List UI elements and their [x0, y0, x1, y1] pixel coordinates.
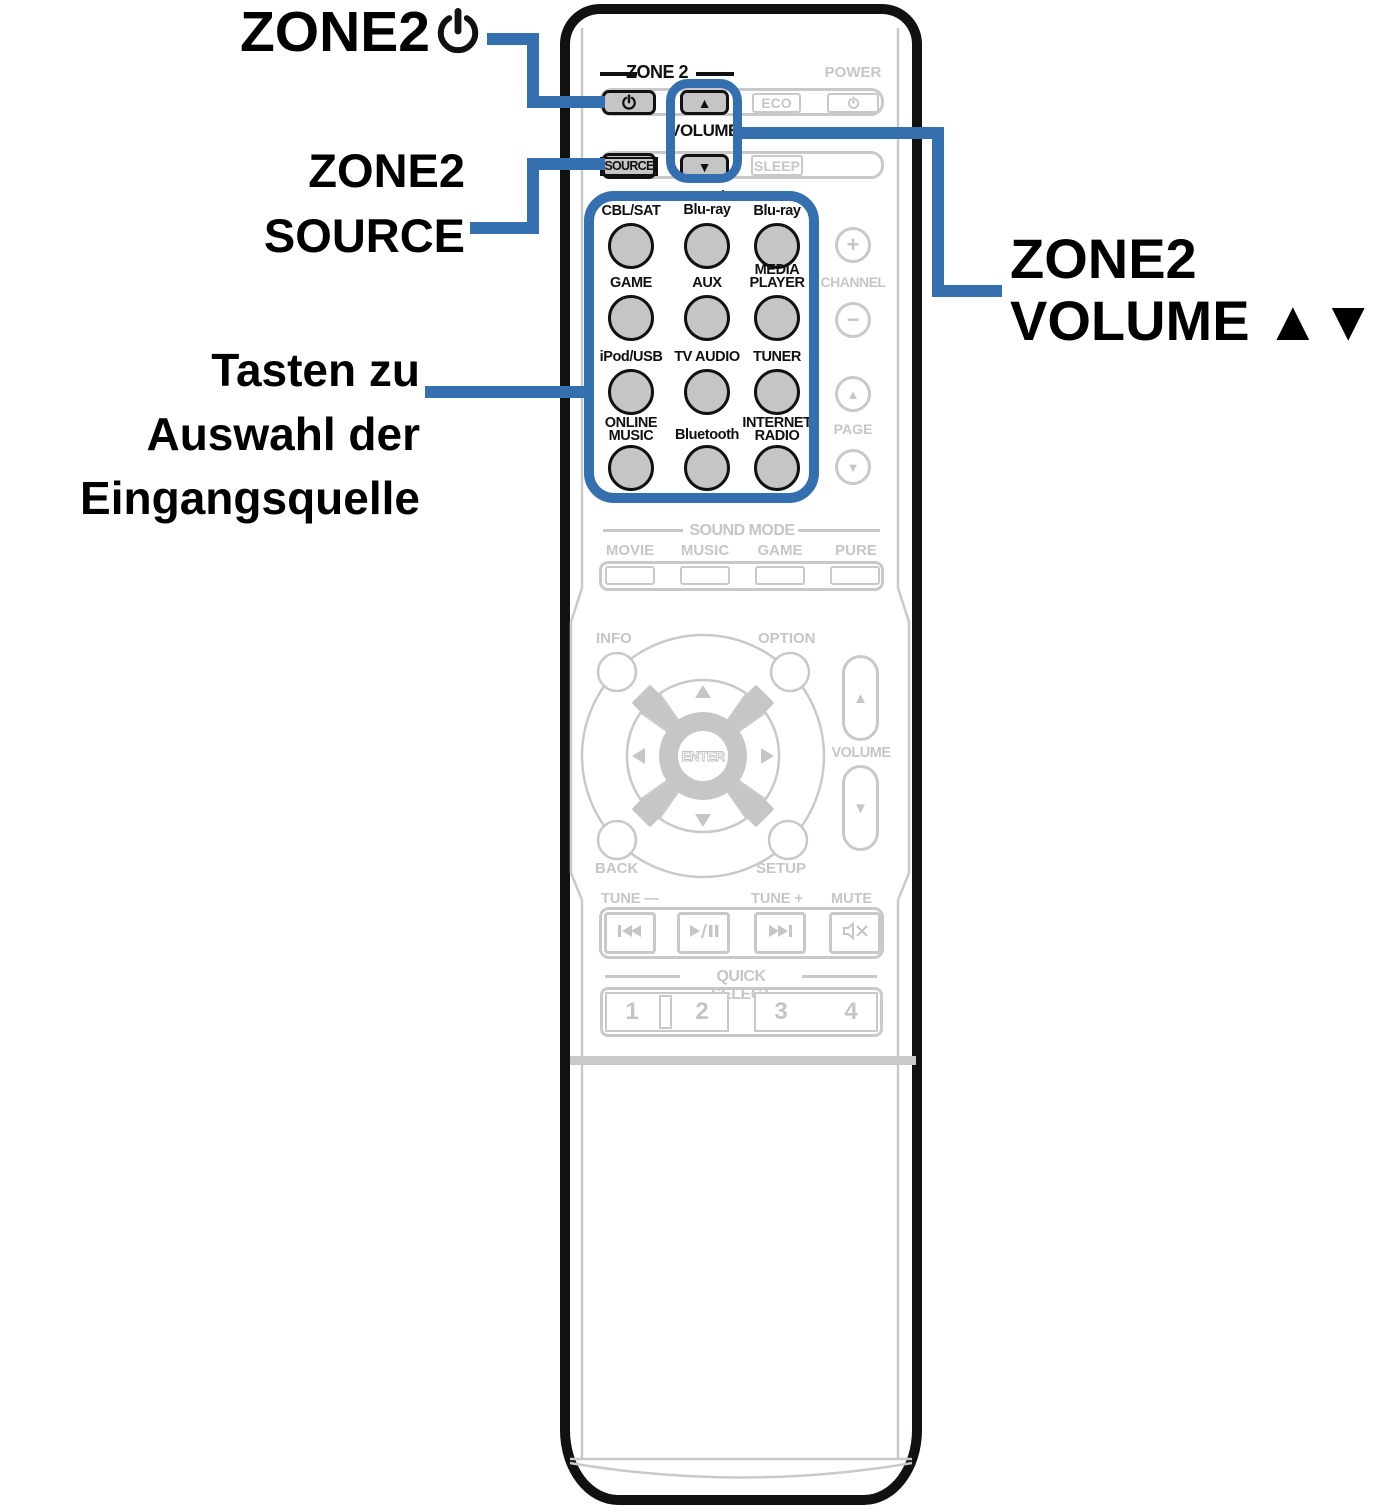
diagram-canvas: ZONE2 ZONE2 SOURCE Tasten zu Auswahl der…: [0, 0, 1386, 1510]
power-icon: [621, 94, 637, 111]
plus-icon: +: [847, 232, 860, 258]
input-select-highlight-box: [584, 191, 819, 503]
play-pause-icon: [687, 922, 721, 945]
callout-input-select-line2: Auswahl der: [40, 402, 420, 466]
eco-button[interactable]: ECO: [752, 93, 801, 113]
connector-zone2-volume: [932, 127, 944, 297]
skip-forward-icon: [765, 922, 795, 945]
callout-zone2-source-line2: SOURCE: [150, 203, 465, 268]
play-pause-button[interactable]: [677, 912, 730, 954]
tune-plus-label: TUNE +: [751, 891, 821, 907]
callout-zone2-source-line1: ZONE2: [150, 138, 465, 203]
callout-zone2-volume-line1: ZONE2: [1010, 228, 1386, 290]
cursor-pad[interactable]: ENTER: [573, 626, 833, 886]
callout-input-select-line1: Tasten zu: [40, 338, 420, 402]
zone2-source-button[interactable]: SOURCE: [602, 153, 656, 179]
power-section-label: POWER: [824, 64, 882, 81]
power-icon: [434, 7, 482, 57]
triangle-down-icon: ▼: [853, 800, 868, 817]
connector-zone2-volume: [932, 285, 1002, 297]
triangle-up-icon: ▲: [853, 690, 868, 707]
zone2-header-dash-right: [696, 72, 734, 76]
quick-select-dash-right: [802, 975, 877, 978]
tune-minus-label: TUNE —: [601, 891, 671, 907]
zone2-power-button[interactable]: [602, 90, 656, 115]
quick-select-3-button[interactable]: 3: [754, 998, 808, 1026]
skip-back-button[interactable]: [604, 912, 656, 954]
quick-select-4-button[interactable]: 4: [824, 998, 878, 1026]
quick-select-1-button[interactable]: 1: [605, 998, 659, 1026]
channel-minus-button[interactable]: −: [835, 302, 871, 338]
channel-label: CHANNEL: [815, 274, 891, 290]
zone2-volume-highlight-box: [666, 79, 742, 183]
callout-zone2-power-text: ZONE2: [240, 0, 430, 64]
callout-zone2-source: ZONE2 SOURCE: [150, 138, 465, 268]
sound-mode-movie-button[interactable]: [605, 566, 655, 585]
sound-mode-pure-label: PURE: [833, 542, 879, 559]
sound-mode-dash-right: [798, 529, 880, 532]
sound-mode-music-button[interactable]: [680, 566, 730, 585]
callout-zone2-volume: ZONE2 VOLUME ▲▼: [1010, 228, 1386, 352]
callout-input-select-line3: Eingangsquelle: [40, 466, 420, 530]
power-button[interactable]: [827, 93, 879, 113]
sound-mode-music-label: MUSIC: [680, 542, 730, 559]
connector-zone2-source: [527, 158, 605, 170]
setup-button: [769, 821, 807, 859]
main-volume-up-button[interactable]: ▲: [842, 655, 879, 741]
mute-button[interactable]: [829, 912, 881, 954]
quick-select-2-button[interactable]: 2: [675, 998, 729, 1026]
back-button: [598, 821, 636, 859]
sound-mode-pure-button[interactable]: [830, 566, 880, 585]
sleep-button[interactable]: SLEEP: [751, 155, 803, 176]
quick-select-dash-left: [605, 975, 680, 978]
page-down-button[interactable]: ▼: [835, 449, 871, 485]
connector-input-select: [425, 386, 590, 398]
channel-plus-button[interactable]: +: [835, 227, 871, 263]
info-button: [598, 653, 636, 691]
quick-select-divider: [659, 995, 672, 1029]
callout-zone2-power: ZONE2: [150, 2, 482, 62]
sound-mode-header: SOUND MODE: [688, 522, 796, 540]
sound-mode-dash-left: [603, 529, 683, 532]
mute-icon: [839, 921, 871, 946]
skip-back-icon: [615, 922, 645, 945]
power-icon: [847, 96, 860, 110]
main-volume-label: VOLUME: [829, 745, 893, 761]
sleep-label: SLEEP: [754, 158, 800, 174]
eco-label: ECO: [761, 95, 791, 111]
minus-icon: −: [847, 307, 860, 333]
body-section-divider: [570, 1056, 916, 1065]
page-up-button[interactable]: ▲: [835, 376, 871, 412]
source-label: SOURCE: [600, 157, 657, 176]
page-label: PAGE: [833, 421, 873, 437]
mute-label: MUTE: [831, 891, 881, 907]
callout-zone2-volume-line2: VOLUME ▲▼: [1010, 290, 1386, 352]
connector-zone2-power: [527, 96, 605, 108]
option-button: [771, 653, 809, 691]
sound-mode-game-label: GAME: [755, 542, 805, 559]
main-volume-down-button[interactable]: ▼: [842, 765, 879, 851]
triangle-down-icon: ▼: [847, 460, 860, 475]
enter-label: ENTER: [681, 749, 725, 764]
callout-input-select: Tasten zu Auswahl der Eingangsquelle: [40, 338, 420, 530]
sound-mode-game-button[interactable]: [755, 566, 805, 585]
skip-forward-button[interactable]: [754, 912, 806, 954]
sound-mode-movie-label: MOVIE: [605, 542, 655, 559]
connector-zone2-volume: [740, 127, 944, 139]
triangle-up-icon: ▲: [847, 387, 860, 402]
